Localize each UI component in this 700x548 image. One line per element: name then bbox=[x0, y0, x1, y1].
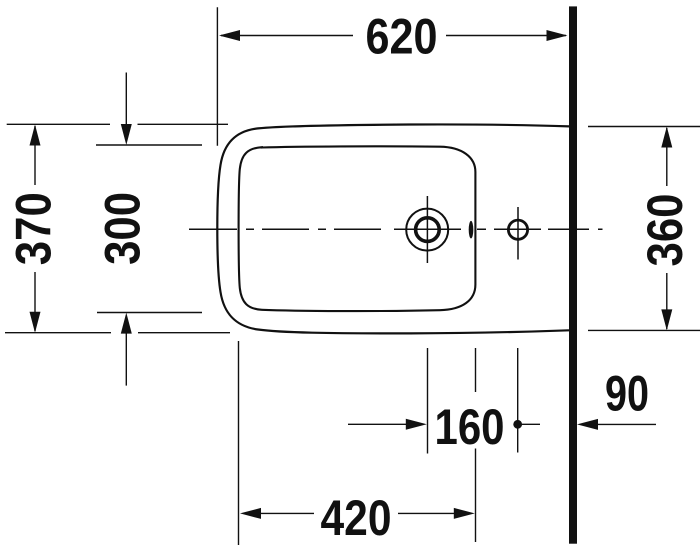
svg-text:620: 620 bbox=[366, 8, 438, 64]
svg-text:360: 360 bbox=[637, 194, 693, 267]
svg-text:370: 370 bbox=[5, 192, 61, 265]
svg-text:420: 420 bbox=[321, 490, 392, 546]
svg-text:90: 90 bbox=[605, 366, 649, 422]
svg-text:300: 300 bbox=[95, 192, 151, 265]
svg-text:160: 160 bbox=[435, 399, 505, 455]
